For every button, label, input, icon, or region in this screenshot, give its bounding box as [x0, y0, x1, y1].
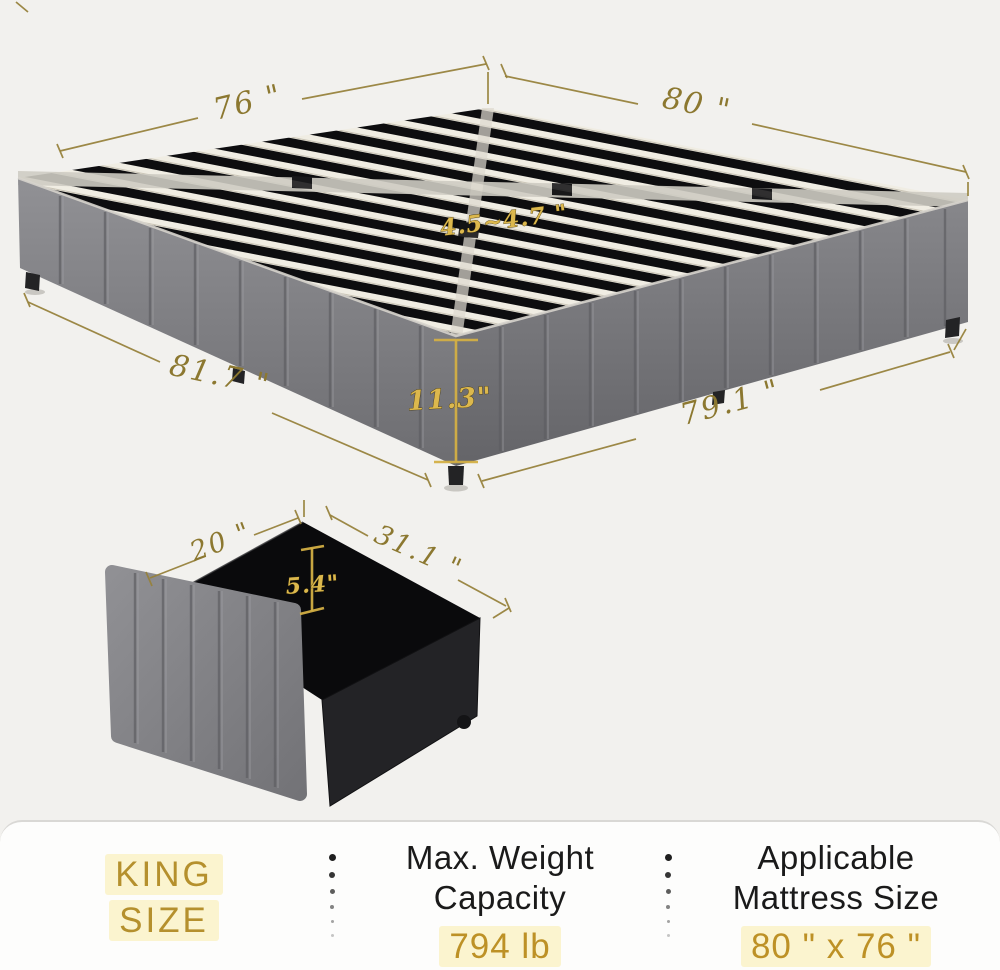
bed-frame-illustration	[18, 108, 968, 492]
dim-bed-width-label: 76 "	[210, 78, 286, 128]
spec-size: KING SIZE	[0, 838, 328, 970]
dotted-divider	[664, 838, 672, 970]
dotted-divider	[328, 838, 336, 970]
spec-weight: Max. Weight Capacity 794 lb	[336, 838, 664, 970]
spec-size-title: KING SIZE	[0, 852, 328, 944]
dim-bed-length-label: 80 "	[659, 81, 734, 129]
dim-drawer-height-label: 5.4"	[285, 570, 340, 600]
specs-bar: KING SIZE Max. Weight Capacity 794 lb Ap…	[0, 820, 1000, 970]
spec-mattress: Applicable Mattress Size 80 " x 76 "	[672, 838, 1000, 970]
bed-and-drawer-diagram: 76 " 80 " 4.5~4.7 " 81.7 "	[0, 0, 1000, 820]
king-size-line1: KING	[105, 854, 223, 895]
weight-capacity-label: Max. Weight Capacity	[336, 838, 664, 919]
mattress-size-value: 80 " x 76 "	[672, 927, 1000, 967]
product-dimension-image: 76 " 80 " 4.5~4.7 " 81.7 "	[0, 0, 1000, 970]
mattress-size-label: Applicable Mattress Size	[672, 838, 1000, 919]
drawer-caster-wheel	[457, 715, 471, 729]
king-size-line2: SIZE	[109, 900, 219, 941]
dim-bed-height-label: 11.3"	[406, 382, 492, 417]
weight-capacity-value: 794 lb	[336, 927, 664, 967]
drawer-front-panel	[112, 572, 300, 794]
